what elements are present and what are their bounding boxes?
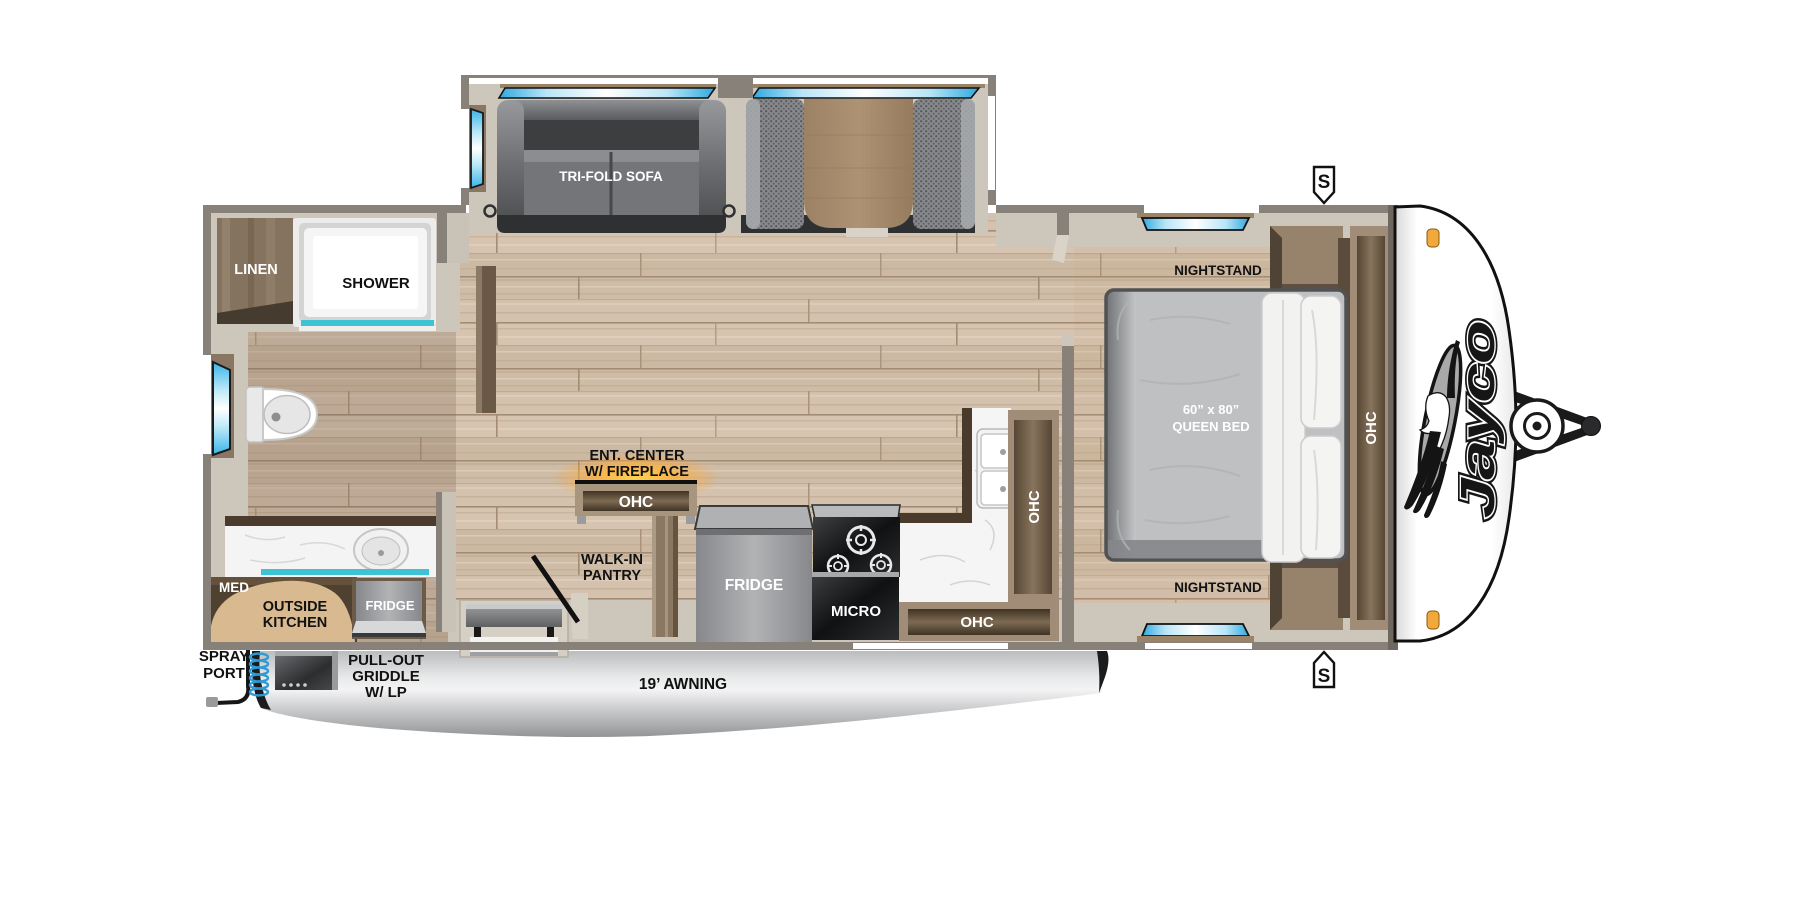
svg-text:SHOWER: SHOWER xyxy=(342,275,410,292)
svg-text:S: S xyxy=(1318,666,1331,687)
svg-text:PANTRY: PANTRY xyxy=(583,568,641,584)
svg-text:OHC: OHC xyxy=(619,494,653,511)
svg-text:LINEN: LINEN xyxy=(234,262,278,278)
svg-text:PULL-OUT: PULL-OUT xyxy=(348,652,424,669)
svg-text:OUTSIDE: OUTSIDE xyxy=(263,599,328,615)
svg-text:NIGHTSTAND: NIGHTSTAND xyxy=(1174,580,1262,595)
svg-text:OHC: OHC xyxy=(1026,490,1043,524)
svg-text:QUEEN BED: QUEEN BED xyxy=(1172,419,1249,434)
svg-text:S: S xyxy=(1318,172,1331,193)
svg-text:FRIDGE: FRIDGE xyxy=(365,598,414,613)
svg-text:W/ FIREPLACE: W/ FIREPLACE xyxy=(585,464,689,480)
svg-text:MED: MED xyxy=(219,580,249,595)
svg-text:W/ LP: W/ LP xyxy=(365,684,407,701)
svg-text:FRIDGE: FRIDGE xyxy=(725,577,784,594)
svg-text:SPRAY: SPRAY xyxy=(199,648,249,665)
svg-text:OHC: OHC xyxy=(1363,411,1380,445)
svg-text:TRI-FOLD SOFA: TRI-FOLD SOFA xyxy=(559,169,663,184)
svg-text:WALK-IN: WALK-IN xyxy=(581,552,643,568)
svg-text:MICRO: MICRO xyxy=(831,603,881,620)
svg-text:19’ AWNING: 19’ AWNING xyxy=(639,676,727,693)
svg-text:GRIDDLE: GRIDDLE xyxy=(352,668,420,685)
svg-text:60” x 80”: 60” x 80” xyxy=(1183,402,1239,417)
svg-text:PORT: PORT xyxy=(203,665,245,682)
svg-text:OHC: OHC xyxy=(960,614,994,631)
svg-text:KITCHEN: KITCHEN xyxy=(263,615,327,631)
svg-text:NIGHTSTAND: NIGHTSTAND xyxy=(1174,263,1262,278)
svg-text:ENT. CENTER: ENT. CENTER xyxy=(589,448,685,464)
